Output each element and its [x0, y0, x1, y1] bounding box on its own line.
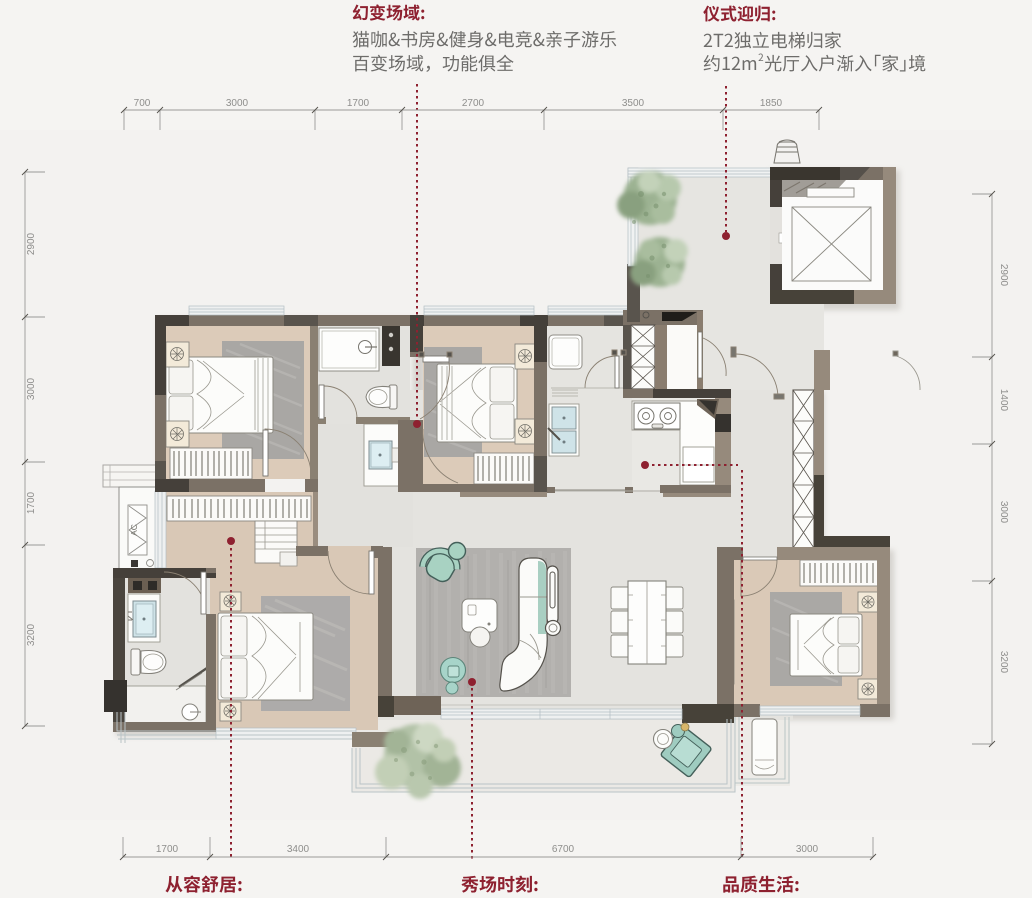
svg-text:3000: 3000 — [226, 98, 249, 109]
svg-text:1850: 1850 — [760, 98, 783, 109]
svg-text:1700: 1700 — [347, 98, 370, 109]
svg-text:3200: 3200 — [998, 651, 1009, 674]
svg-text:2900: 2900 — [26, 232, 37, 255]
svg-text:2700: 2700 — [462, 98, 485, 109]
svg-text:6700: 6700 — [552, 844, 575, 855]
svg-text:3200: 3200 — [26, 623, 37, 646]
svg-text:1700: 1700 — [26, 491, 37, 514]
svg-text:3500: 3500 — [622, 98, 645, 109]
svg-text:3000: 3000 — [26, 377, 37, 400]
svg-text:3000: 3000 — [796, 844, 819, 855]
svg-text:1700: 1700 — [156, 844, 179, 855]
svg-text:700: 700 — [134, 98, 151, 109]
svg-text:1400: 1400 — [998, 389, 1009, 412]
svg-text:2900: 2900 — [998, 264, 1009, 287]
svg-text:3400: 3400 — [287, 844, 310, 855]
svg-text:3000: 3000 — [998, 501, 1009, 524]
svg-text:AC: AC — [129, 524, 139, 536]
